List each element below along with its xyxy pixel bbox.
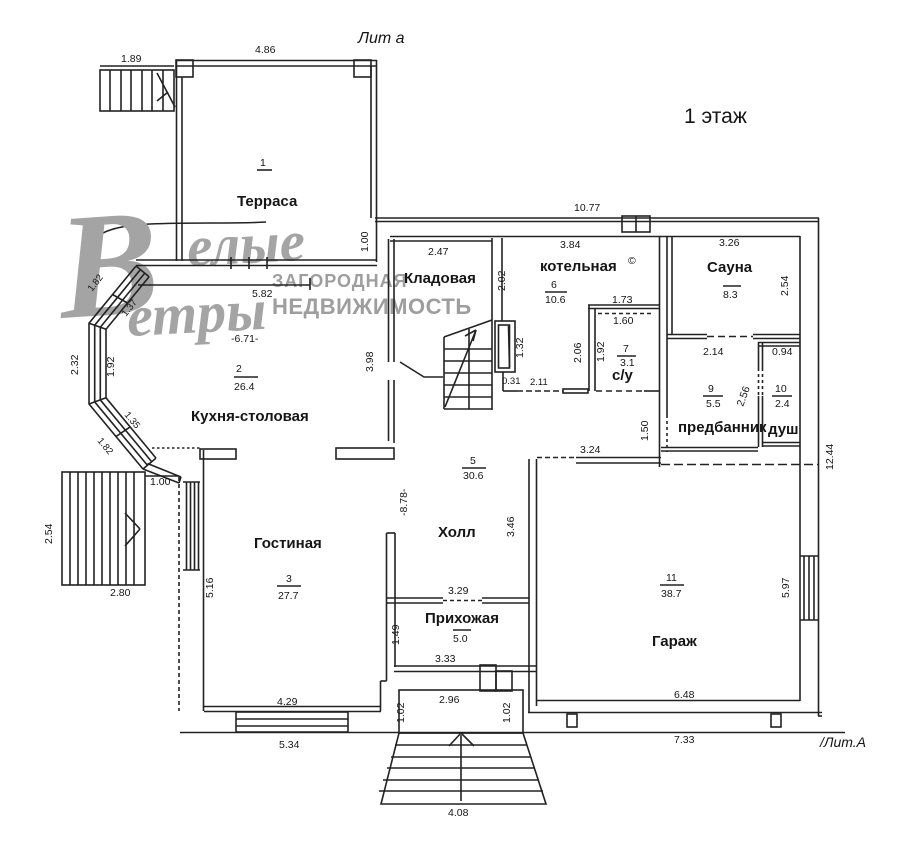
svg-text:душ: душ [768, 421, 799, 438]
svg-text:котельная: котельная [540, 258, 617, 275]
svg-text:11: 11 [666, 572, 677, 584]
svg-text:Лит а: Лит а [357, 30, 405, 47]
svg-text:1.50: 1.50 [639, 420, 651, 441]
svg-text:5: 5 [470, 455, 476, 467]
svg-text:Гараж: Гараж [652, 633, 697, 650]
svg-text:9: 9 [708, 383, 714, 395]
svg-text:предбанник: предбанник [678, 419, 767, 436]
svg-text:4.86: 4.86 [255, 44, 276, 56]
svg-text:Сауна: Сауна [707, 259, 753, 276]
svg-text:3: 3 [286, 573, 292, 585]
svg-text:Прихожая: Прихожая [425, 610, 499, 627]
svg-text:10.77: 10.77 [574, 202, 600, 214]
svg-text:1.00: 1.00 [359, 231, 371, 252]
svg-text:2.80: 2.80 [110, 587, 131, 599]
svg-text:1.92: 1.92 [105, 356, 117, 377]
svg-text:1.00: 1.00 [150, 476, 171, 488]
svg-text:1.92: 1.92 [595, 341, 607, 362]
svg-text:3.24: 3.24 [580, 444, 601, 456]
svg-text:12.44: 12.44 [824, 444, 836, 470]
svg-text:1.35: 1.35 [122, 410, 142, 431]
svg-text:3.33: 3.33 [435, 653, 456, 665]
svg-text:2.96: 2.96 [439, 694, 460, 706]
svg-text:38.7: 38.7 [661, 588, 682, 600]
svg-text:-8.78-: -8.78- [398, 488, 410, 516]
svg-text:30.6: 30.6 [463, 470, 484, 482]
svg-text:1.82: 1.82 [95, 436, 115, 457]
svg-text:Кухня-столовая: Кухня-столовая [191, 408, 309, 425]
svg-text:1.89: 1.89 [121, 53, 142, 65]
svg-text:ЗАГОРОДНАЯ: ЗАГОРОДНАЯ [272, 271, 408, 291]
svg-text:6: 6 [551, 279, 557, 291]
svg-text:2.47: 2.47 [428, 246, 449, 258]
svg-text:2.32: 2.32 [69, 354, 81, 375]
svg-text:-6.71-: -6.71- [231, 333, 259, 345]
svg-text:1.32: 1.32 [514, 337, 526, 358]
svg-text:НЕДВИЖИМОСТЬ: НЕДВИЖИМОСТЬ [272, 294, 472, 319]
svg-text:8.3: 8.3 [723, 289, 738, 301]
svg-text:2.54: 2.54 [779, 275, 791, 296]
svg-text:1 этаж: 1 этаж [684, 105, 747, 128]
svg-text:5.16: 5.16 [204, 577, 216, 598]
svg-text:27.7: 27.7 [278, 590, 299, 602]
svg-text:Гостиная: Гостиная [254, 535, 322, 552]
svg-text:1: 1 [260, 157, 266, 169]
svg-text:Холл: Холл [438, 524, 476, 541]
svg-text:2.11: 2.11 [530, 377, 548, 388]
svg-text:6.48: 6.48 [674, 689, 695, 701]
svg-text:7.33: 7.33 [674, 734, 695, 746]
svg-text:Терраса: Терраса [237, 193, 298, 210]
svg-text:1.49: 1.49 [390, 624, 402, 645]
svg-text:с/у: с/у [612, 367, 634, 384]
svg-text:5.0: 5.0 [453, 633, 468, 645]
svg-text:3.1: 3.1 [620, 357, 635, 369]
svg-text:2.02: 2.02 [496, 270, 508, 291]
svg-text:5.82: 5.82 [252, 288, 273, 300]
svg-text:5.97: 5.97 [780, 577, 792, 598]
svg-text:0.94: 0.94 [772, 346, 793, 358]
svg-text:4.08: 4.08 [448, 807, 469, 819]
svg-text:5.5: 5.5 [706, 398, 721, 410]
svg-text:10.6: 10.6 [545, 294, 566, 306]
svg-text:1.02: 1.02 [395, 702, 407, 723]
svg-text:2.14: 2.14 [703, 346, 724, 358]
svg-text:2.06: 2.06 [572, 342, 584, 363]
svg-text:3.29: 3.29 [448, 585, 469, 597]
svg-text:7: 7 [623, 343, 629, 355]
svg-text:2.56: 2.56 [735, 385, 753, 408]
svg-text:3.84: 3.84 [560, 239, 581, 251]
svg-text:0.31: 0.31 [502, 376, 521, 387]
svg-text:2.54: 2.54 [43, 523, 55, 544]
svg-text:1.02: 1.02 [501, 702, 513, 723]
svg-text:/Лит.А: /Лит.А [819, 734, 866, 750]
svg-text:елые: елые [185, 210, 306, 279]
svg-text:2.4: 2.4 [775, 398, 790, 410]
svg-text:1.60: 1.60 [613, 315, 634, 327]
svg-text:26.4: 26.4 [234, 381, 255, 393]
svg-text:©: © [628, 255, 636, 267]
svg-text:10: 10 [775, 383, 787, 395]
svg-text:5.34: 5.34 [279, 739, 300, 751]
svg-text:2: 2 [236, 363, 242, 375]
svg-text:4.29: 4.29 [277, 696, 298, 708]
svg-text:3.26: 3.26 [719, 237, 740, 249]
svg-text:3.46: 3.46 [505, 516, 517, 537]
svg-text:3.98: 3.98 [364, 351, 376, 372]
svg-text:Кладовая: Кладовая [404, 270, 476, 287]
